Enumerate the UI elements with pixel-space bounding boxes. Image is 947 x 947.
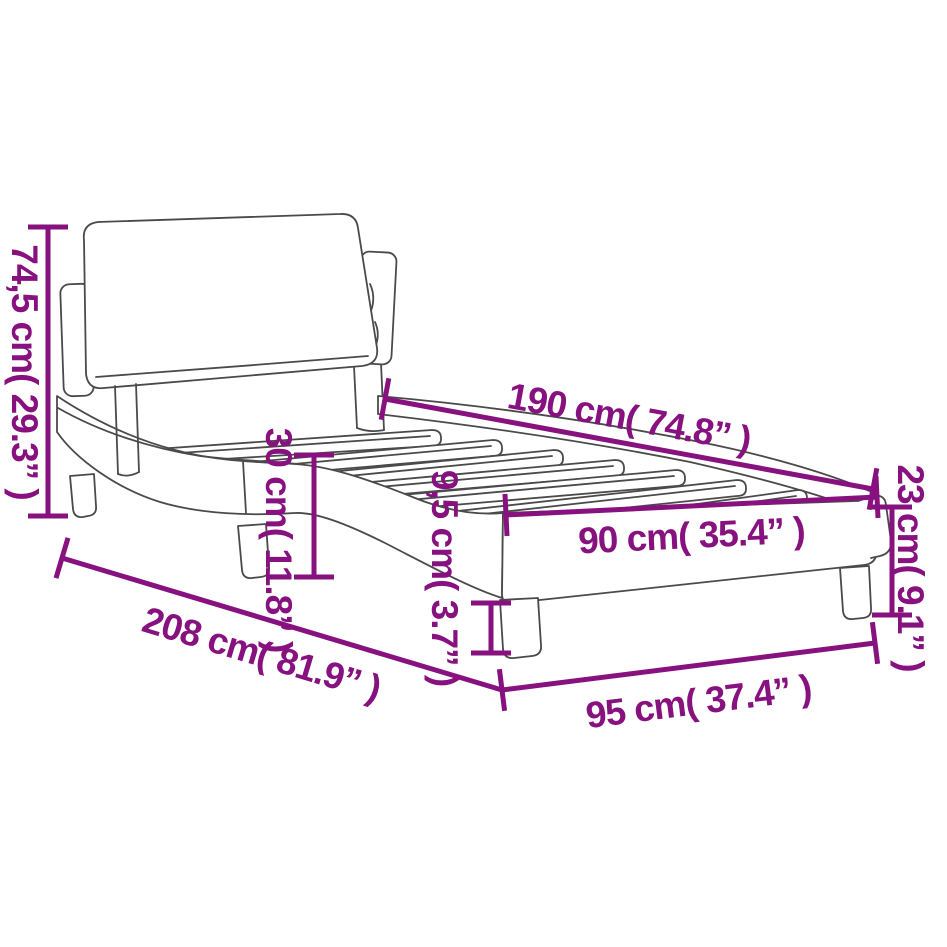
leg-foot-right	[840, 566, 871, 619]
dimension-label-headboard-height: 74,5 cm( 29.3” )	[4, 244, 45, 499]
dimension-label-frame-height: 30 cm( 11.8” )	[258, 428, 299, 653]
headboard-panel	[84, 214, 377, 388]
leg-foot-left	[500, 598, 541, 658]
leg-headboard	[70, 474, 96, 517]
dimension-diagram: 74,5 cm( 29.3” ) 190 cm( 74.8” ) 30 cm( …	[0, 0, 947, 947]
dimension-label-slat-height: 9,5 cm( 3.7” )	[424, 470, 465, 686]
dimension-label-foot-height: 23 cm( 9.1” )	[890, 464, 931, 671]
bed-diagram-svg: 74,5 cm( 29.3” ) 190 cm( 74.8” ) 30 cm( …	[0, 0, 947, 947]
